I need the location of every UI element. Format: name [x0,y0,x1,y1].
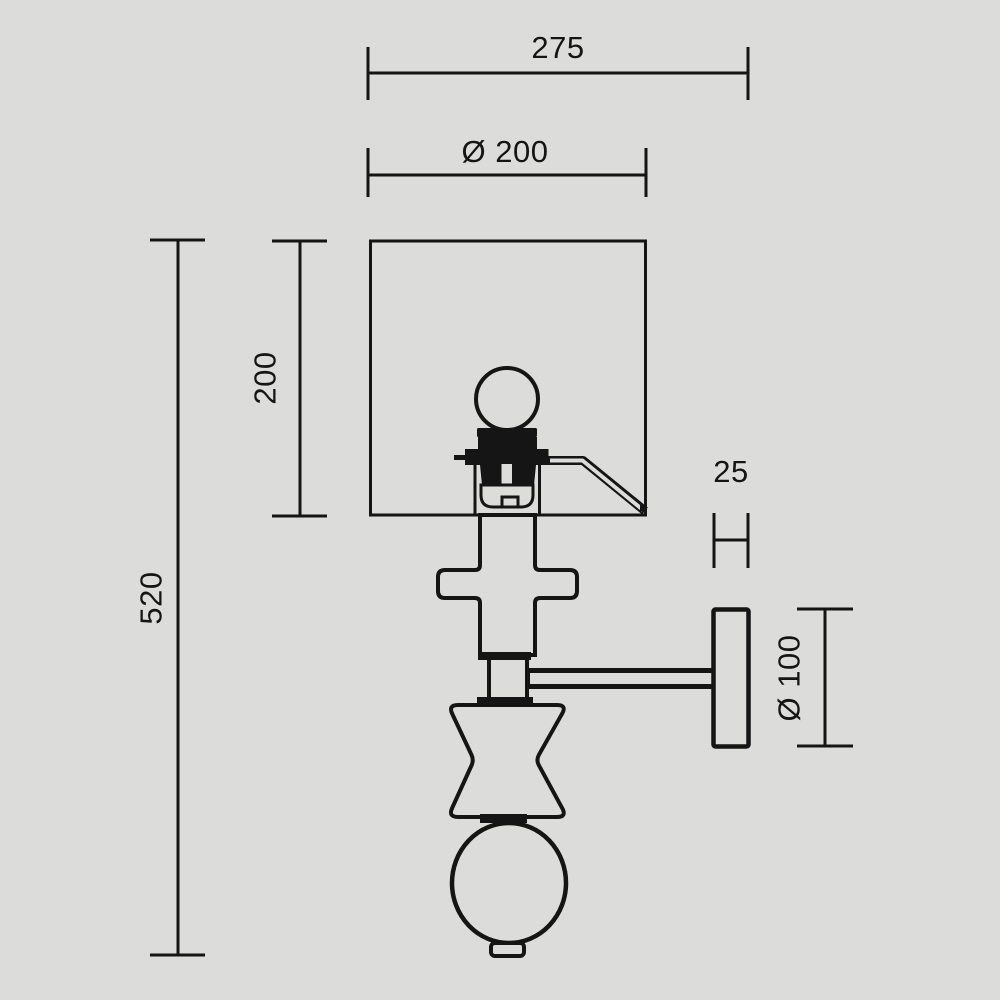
dim-shade-height-label: 200 [248,351,283,404]
arm-corner-joint [640,505,647,511]
upper-bracket-arm [548,461,647,512]
light-bulb [476,368,538,430]
technical-drawing-canvas: 275 Ø 200 200 520 25 Ø 100 [0,0,1000,1000]
stem-cross-piece [438,515,577,655]
socket-notch [502,497,518,507]
dim-shade-diameter-label: Ø 200 [462,134,549,169]
socket-flange [477,428,537,437]
dim-shade-diameter: Ø 200 [368,134,646,197]
dim-overall-height-label: 520 [134,571,169,624]
bulb-socket [454,428,549,515]
stem-column [489,655,527,701]
dim-shade-height: 200 [248,241,328,516]
dim-overall-depth: 275 [368,30,748,100]
socket-rod-stub [454,455,465,460]
dim-plate-thickness: 25 [713,454,748,568]
dim-overall-depth-label: 275 [531,30,584,65]
socket-slot [502,464,513,485]
dim-overall-height: 520 [134,240,206,955]
wall-mount-plate [714,610,749,747]
arm-outline [548,461,645,512]
joint-band [478,652,531,660]
dim-plate-thickness-label: 25 [713,454,748,489]
wall-lamp-drawing: 275 Ø 200 200 520 25 Ø 100 [0,0,1000,1000]
bottom-cap [491,943,524,956]
dim-plate-diameter-label: Ø 100 [772,635,807,722]
dim-plate-diameter: Ø 100 [772,609,854,746]
bowtie-element [451,705,564,817]
sphere-element [452,823,566,943]
